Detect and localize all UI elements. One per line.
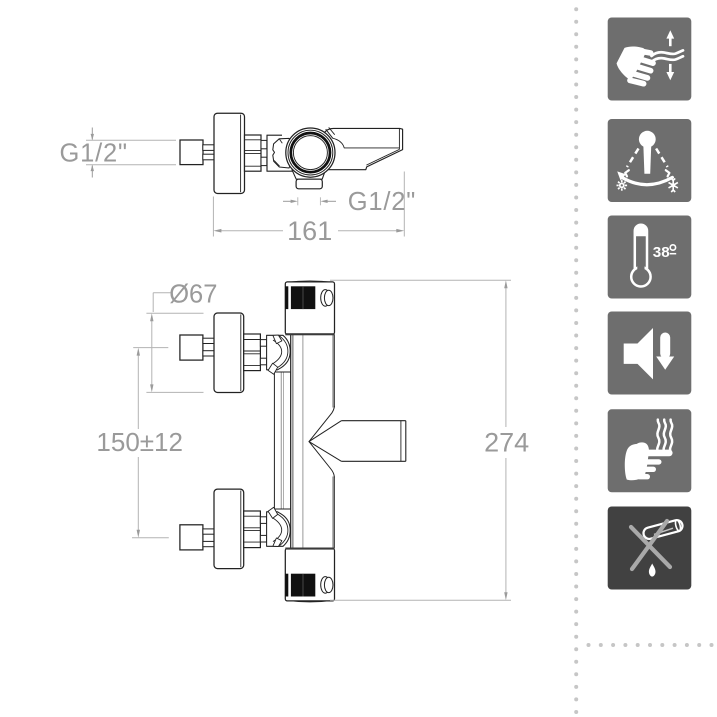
svg-text:38: 38	[653, 244, 670, 261]
svg-text:G1/2": G1/2"	[60, 140, 128, 168]
svg-text:G1/2": G1/2"	[348, 188, 416, 216]
svg-text:274: 274	[484, 428, 529, 458]
svg-text:150±12: 150±12	[96, 427, 183, 457]
svg-text:161: 161	[287, 216, 332, 246]
svg-text:Ø67: Ø67	[169, 281, 217, 309]
